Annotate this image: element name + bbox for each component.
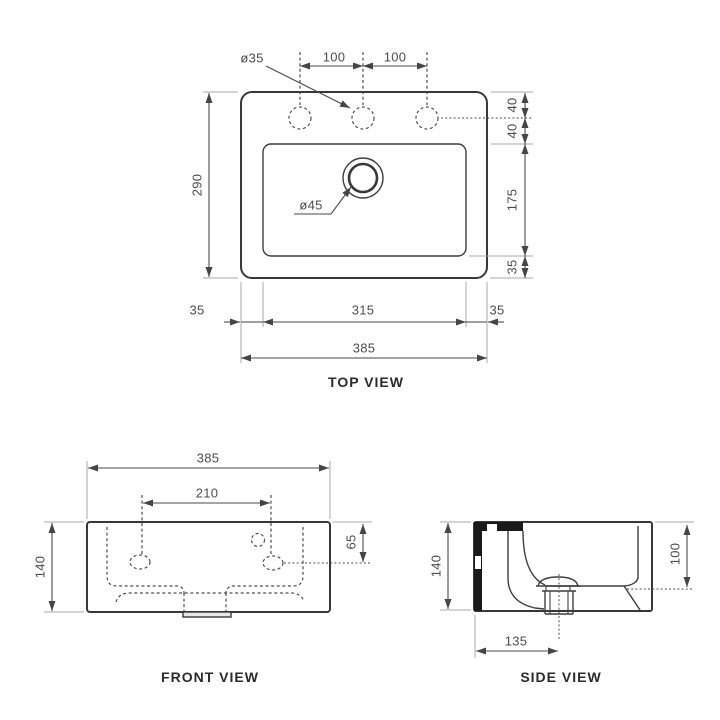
side-view-linework [440,522,694,658]
dim-top-basin-width: 315 [352,304,375,317]
dim-top-hole-spacing-left: 100 [323,51,346,64]
dim-front-fixing-spacing: 210 [196,487,219,500]
dim-top-hole-diameter: ø35 [240,52,263,65]
dim-top-drain-diameter: ø45 [299,199,322,212]
front-view-title: FRONT VIEW [161,669,259,685]
waste-flange [183,612,231,617]
dim-top-basin-depth: 175 [506,189,519,212]
dim-side-inner-depth: 100 [669,543,682,566]
tap-hole-left [289,107,311,129]
dim-top-hole-to-basin: 40 [506,123,519,138]
dim-side-height: 140 [430,555,443,578]
dim-top-rim-right: 35 [489,304,504,317]
tap-hole-center [352,107,374,129]
front-view-linework [44,461,372,617]
basin-technical-drawing: ø35 100 100 290 40 40 175 35 ø45 35 315 … [0,0,720,720]
dim-top-depth: 290 [191,174,204,197]
dim-side-drain-offset: 135 [505,635,528,648]
dim-top-basin-to-front: 35 [506,259,519,274]
side-view-title: SIDE VIEW [520,669,601,685]
leader-hole-diameter [266,66,350,108]
dim-front-height: 140 [34,556,47,579]
top-view-title: TOP VIEW [328,374,404,390]
drain-inner [349,164,377,192]
dim-top-rim-left: 35 [189,304,204,317]
dim-front-total-width: 385 [197,452,220,465]
overflow-hole [252,534,265,547]
drawing-linework [0,0,720,720]
dim-top-edge-to-hole: 40 [506,97,519,112]
dim-top-hole-spacing-right: 100 [384,51,407,64]
fixing-hole-left [130,555,150,569]
dim-front-hole-drop: 65 [345,534,358,549]
fixing-hole-right [263,556,283,570]
tap-hole-right [416,107,438,129]
dim-top-total-width: 385 [353,342,376,355]
